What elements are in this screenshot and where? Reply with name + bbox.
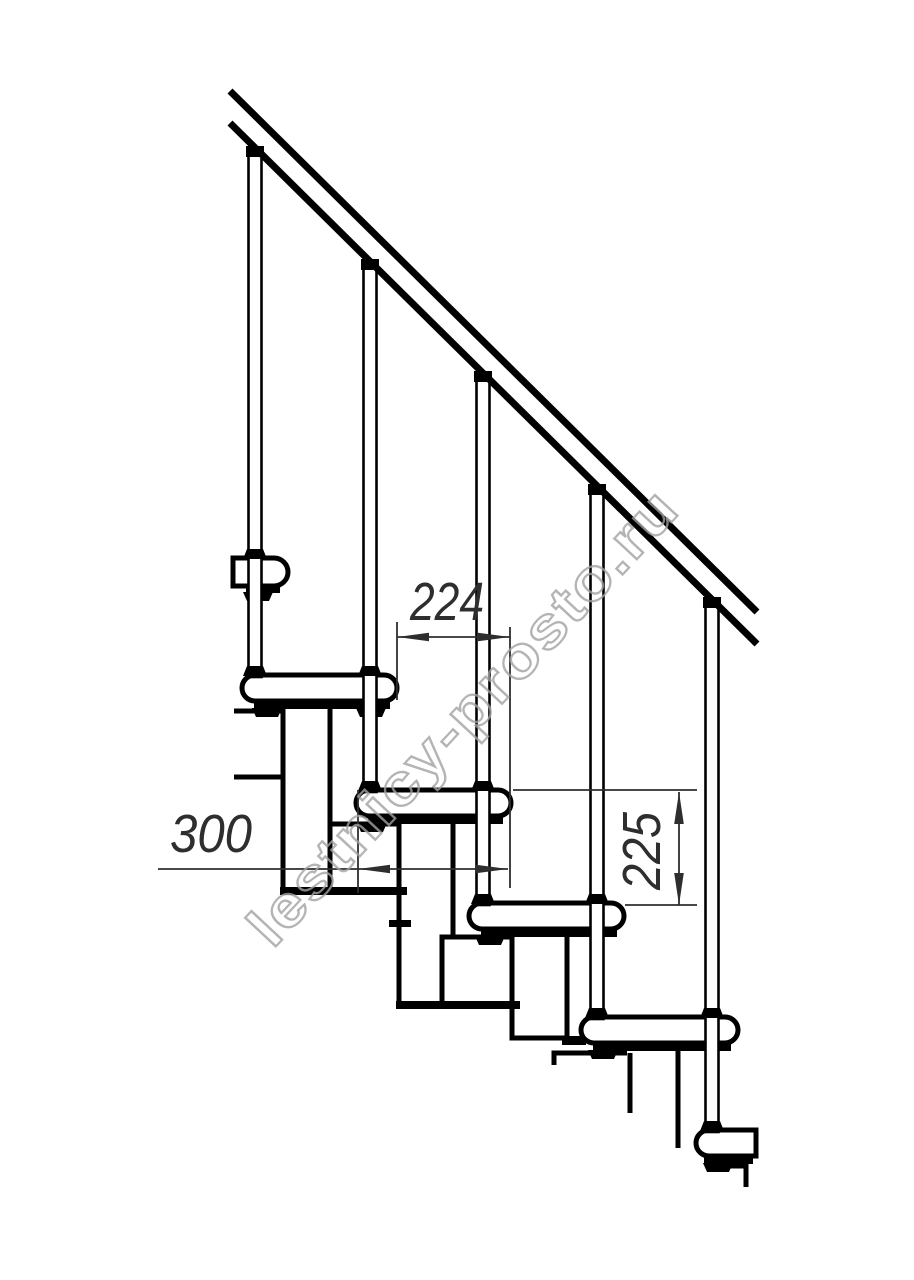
tread-bracket xyxy=(588,1050,618,1059)
drawing-background xyxy=(0,0,914,1280)
baluster-collar xyxy=(471,781,495,791)
baluster-2 xyxy=(364,263,377,792)
baluster-5 xyxy=(706,601,719,1132)
tread-bracket xyxy=(475,936,505,945)
tread-bracket xyxy=(703,1163,733,1172)
baluster-collar xyxy=(585,1008,609,1018)
dimension-label-224: 224 xyxy=(409,572,484,632)
baluster-1 xyxy=(249,150,262,677)
dimension-label-225: 225 xyxy=(612,811,672,891)
baluster-collar xyxy=(358,666,382,676)
baluster-collar xyxy=(471,894,495,904)
baluster-collar xyxy=(243,666,267,676)
module-box-2 xyxy=(442,937,518,1005)
baluster-collar xyxy=(700,1121,724,1131)
tread-bottom-partial xyxy=(696,1130,756,1156)
module-bottom-plate-2 xyxy=(396,1001,520,1009)
tread-bracket xyxy=(252,708,282,717)
underside-plate xyxy=(704,1157,753,1164)
column-flange xyxy=(389,920,411,927)
staircase-drawing-canvas: 224 300 225 lestnicy-prosto.ru xyxy=(0,0,914,1280)
baluster-collar xyxy=(585,894,609,904)
support-column-3 xyxy=(512,931,567,1038)
baluster-collar xyxy=(243,549,267,559)
baluster-collar xyxy=(700,1008,724,1018)
dimension-label-300: 300 xyxy=(170,804,252,864)
staircase-drawing-page: 224 300 225 lestnicy-prosto.ru xyxy=(0,0,914,1280)
